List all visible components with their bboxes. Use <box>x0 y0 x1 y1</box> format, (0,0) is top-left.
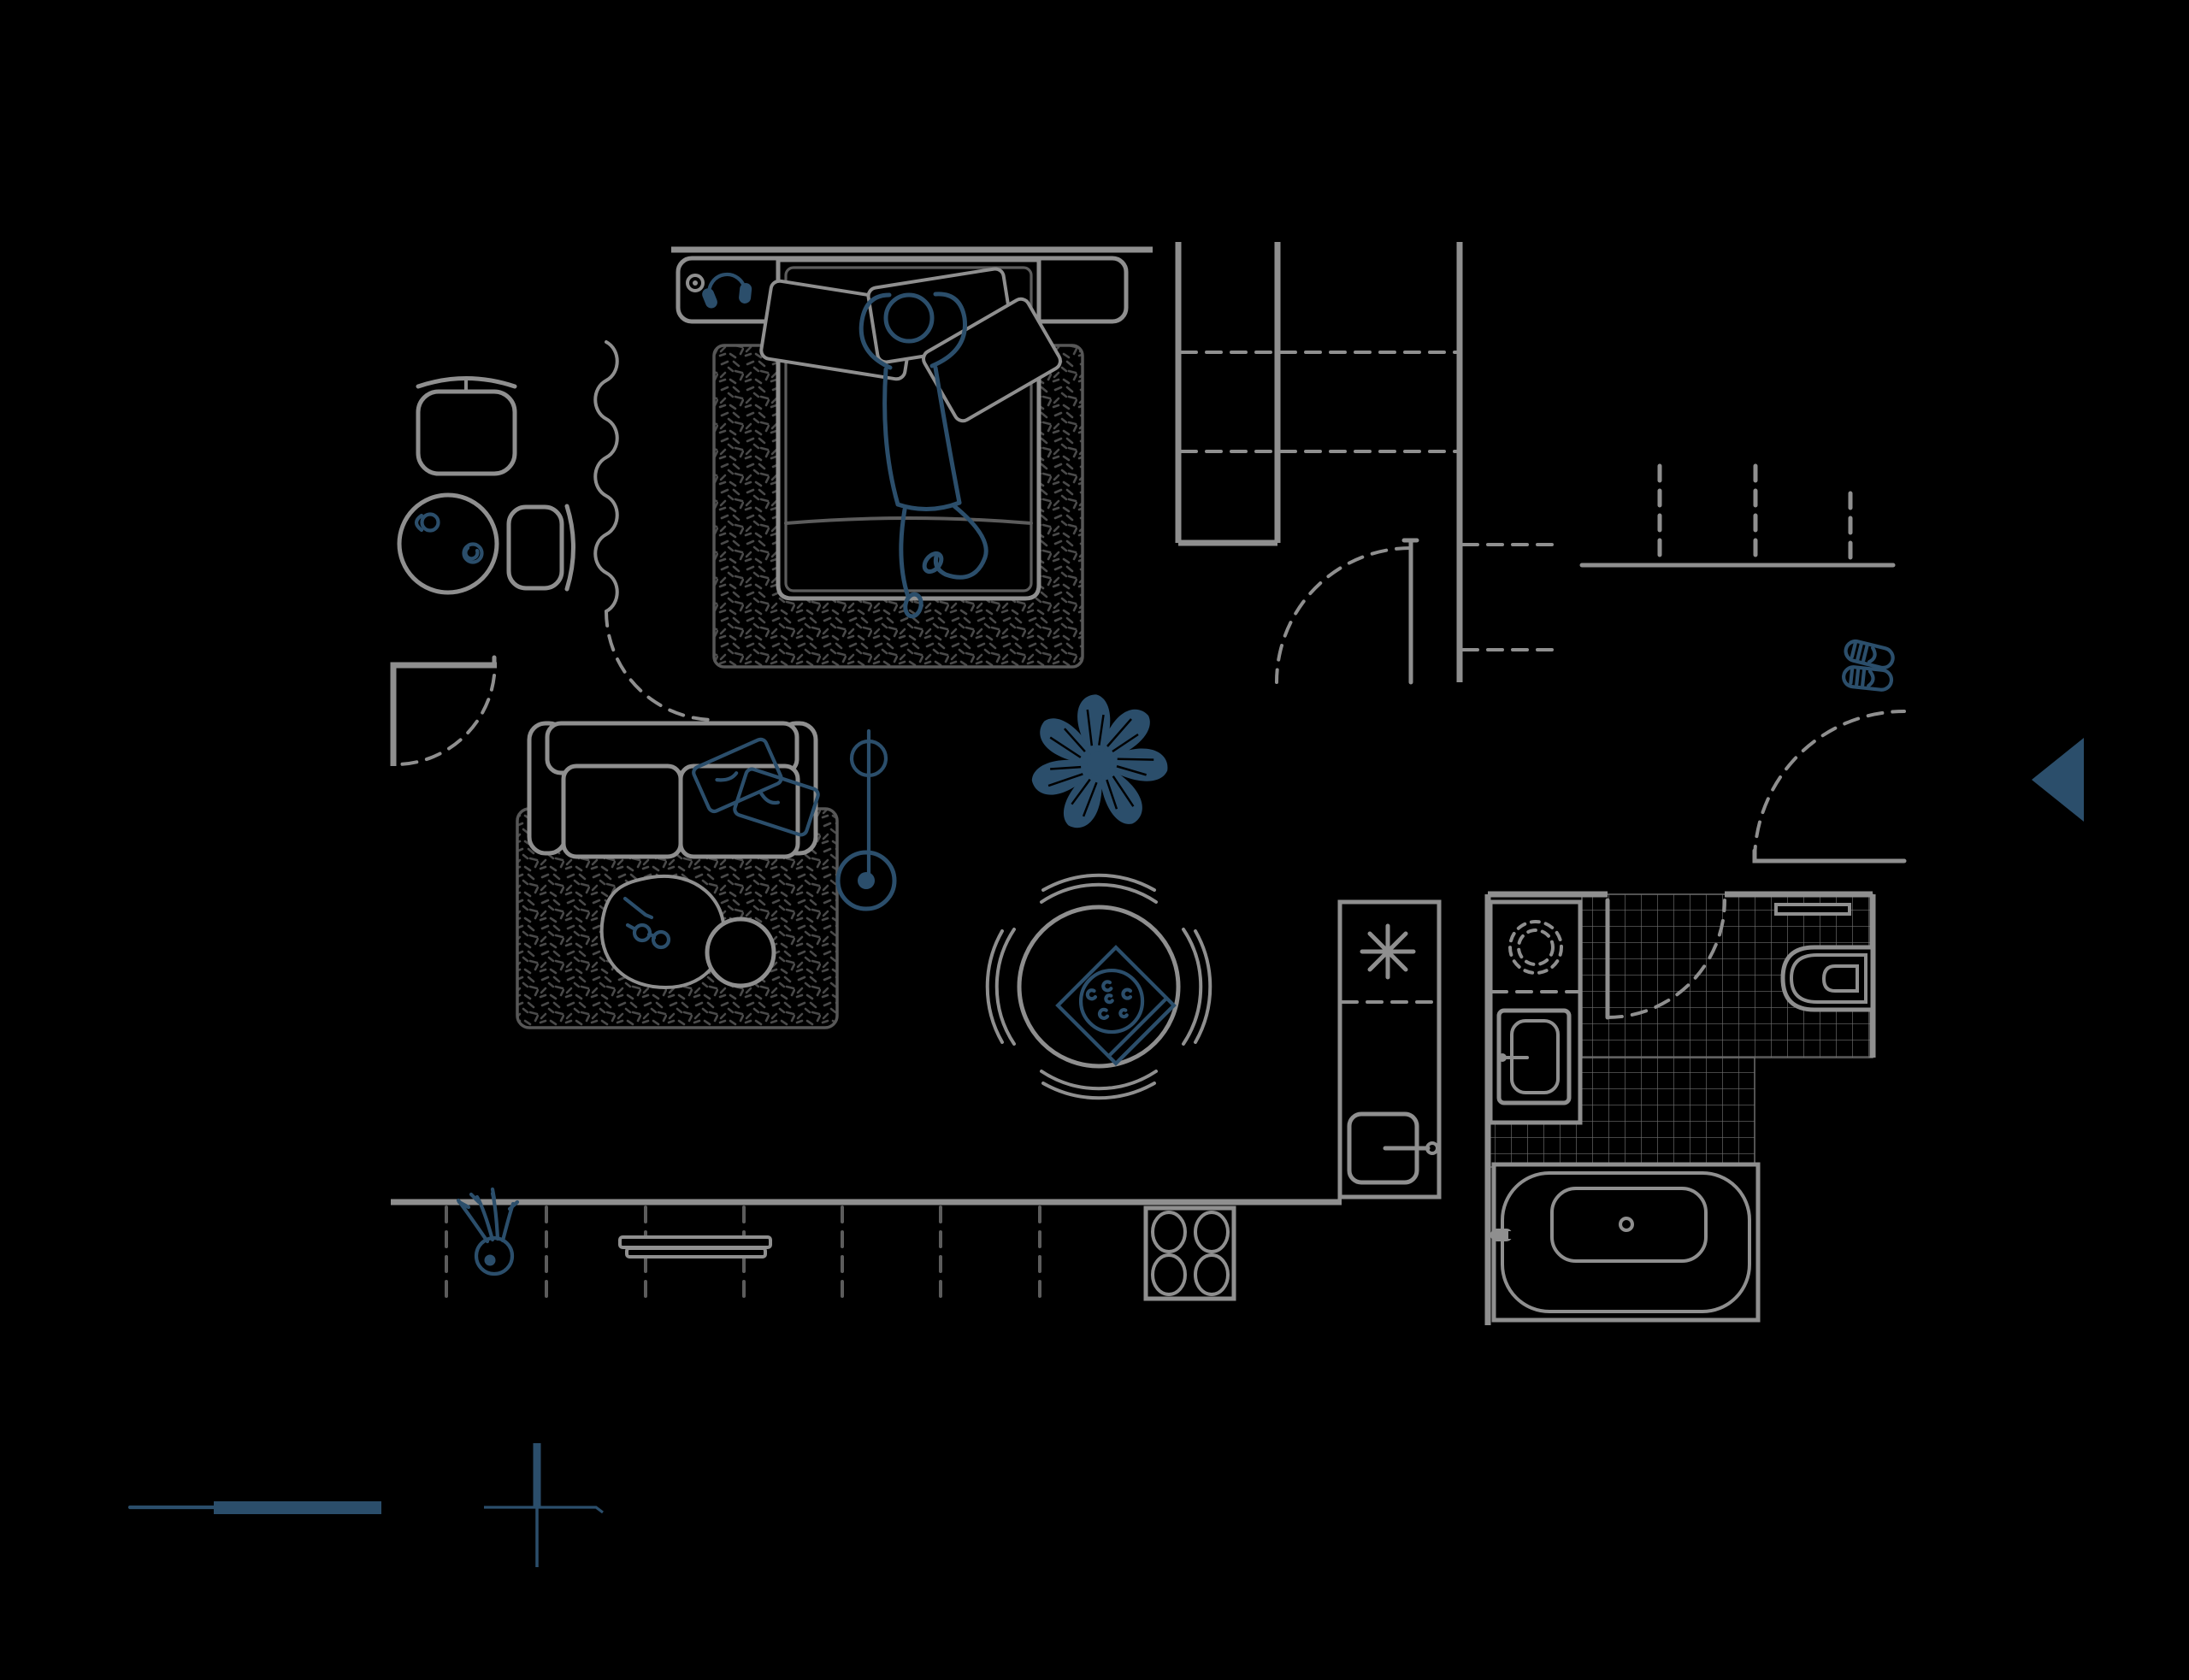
dining-table <box>986 874 1211 1099</box>
north-cross <box>484 1443 603 1567</box>
stove <box>1146 1208 1234 1299</box>
coat-hangers-dashed <box>1660 466 1850 563</box>
shelf-knob-dot <box>693 280 698 286</box>
corner-door-swing <box>399 675 494 764</box>
wardrobe-hall <box>1178 242 2084 861</box>
kitchen <box>1146 902 1439 1299</box>
toilet <box>1783 947 1873 1010</box>
round-side-table <box>399 495 497 592</box>
sofa <box>529 723 816 857</box>
entry-arrow-icon <box>2032 738 2084 822</box>
wardrobe-shelves-dashed <box>1182 352 1456 451</box>
bedroom <box>399 250 1153 720</box>
pouf <box>707 919 774 986</box>
tub-faucet <box>1490 1229 1513 1241</box>
slippers-icon <box>1843 640 1895 691</box>
bathroom <box>1488 894 1873 1325</box>
monstera-plant-icon <box>1028 689 1173 832</box>
hall-door <box>1277 540 1417 682</box>
floor-plan-drawing <box>0 0 2189 1680</box>
desk-chair <box>418 379 515 475</box>
side-chair <box>509 506 574 589</box>
floor-lamp-icon <box>838 731 894 909</box>
bedroom-door-swing <box>606 611 715 720</box>
open-shelf-stubs <box>1463 545 1558 650</box>
living-corner-wall <box>393 665 497 766</box>
curtain-wavy <box>595 342 617 611</box>
legend <box>130 1443 603 1567</box>
dining <box>986 874 1211 1099</box>
front-door <box>1755 711 1904 861</box>
scale-bar <box>130 1501 381 1514</box>
tv <box>620 1237 770 1257</box>
fan-asterisk-icon <box>1362 926 1413 977</box>
washing-machine <box>1498 1011 1569 1103</box>
bathtub <box>1490 1164 1758 1320</box>
toilet-shelf <box>1776 905 1850 914</box>
floor-plan-canvas <box>0 0 2189 1680</box>
